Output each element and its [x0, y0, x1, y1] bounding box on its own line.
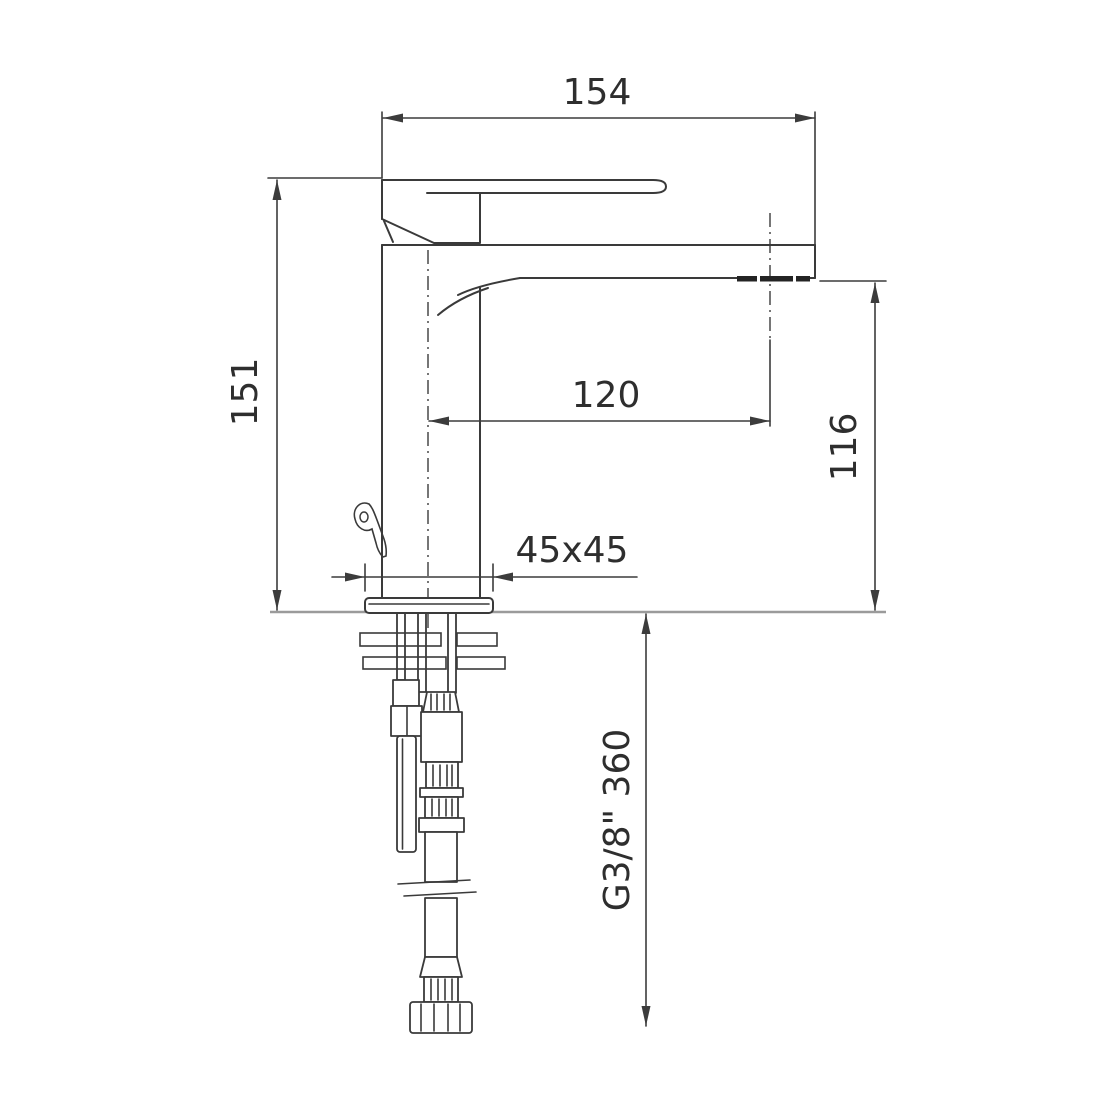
hose-tube-upper: [425, 832, 457, 882]
dimension-154: 154: [382, 72, 815, 245]
arrowhead-154-left: [383, 114, 403, 123]
dimension-g38-360: G3/8" 360: [597, 614, 651, 1026]
aerator-gap-1: [757, 275, 760, 283]
washer-bar-2-right: [457, 657, 505, 669]
hose-connection-nut: [410, 1002, 472, 1033]
aerator-strip: [737, 276, 810, 282]
aerator-gap-2: [793, 275, 796, 283]
supply-tube-right: [448, 613, 456, 693]
arrowhead-120-left: [429, 417, 449, 426]
dim-label-g38: G3/8" 360: [597, 729, 638, 912]
stud-collar: [393, 680, 419, 706]
dimension-116: 116: [820, 281, 886, 610]
faucet-technical-drawing: 154 151 120 116 45x45 G3/8" 360: [0, 0, 1100, 1100]
hose-valve-body: [421, 712, 462, 762]
dimension-151: 151: [225, 178, 382, 610]
hose-band: [419, 818, 464, 832]
hose-crimp-mid: [425, 797, 458, 818]
hook-hole: [360, 512, 368, 522]
arrowhead-154-right: [795, 114, 815, 123]
hose-crimp-top: [423, 692, 459, 712]
base-plate: [365, 598, 493, 613]
dim-label-45x45: 45x45: [516, 530, 629, 571]
handle-lever: [382, 180, 666, 193]
fixing-rod: [397, 736, 416, 852]
dim-label-120: 120: [572, 375, 641, 416]
arrowhead-151-top: [273, 180, 282, 200]
hose-ferrule: [420, 957, 462, 977]
hose-neck: [426, 762, 458, 788]
arrowhead-45x45-right: [493, 573, 513, 582]
arrowhead-151-bottom: [273, 590, 282, 610]
dim-label-154: 154: [563, 72, 632, 113]
spout-fillet-outer: [458, 278, 520, 295]
aerator-icon: [737, 275, 810, 283]
dimension-45x45: 45x45: [332, 530, 637, 591]
arrowhead-45x45-left: [345, 573, 365, 582]
arrowhead-116-top: [871, 283, 880, 303]
arrowhead-g38-top: [642, 614, 651, 634]
arrowhead-120-right: [750, 417, 770, 426]
washer-bar-1-right: [457, 633, 497, 646]
dim-label-116: 116: [824, 413, 865, 482]
hose-tube-lower: [425, 898, 457, 957]
break-line-2: [404, 892, 476, 896]
drawing-canvas: 154 151 120 116 45x45 G3/8" 360: [0, 0, 1100, 1100]
hose-crimp-bottom: [424, 977, 458, 1002]
escutcheon-plate: [365, 598, 493, 613]
arrowhead-g38-bottom: [642, 1006, 651, 1026]
dim-label-151: 151: [225, 358, 266, 427]
under-counter-hardware: [360, 613, 505, 1033]
arrowhead-116-bottom: [871, 590, 880, 610]
handle-base: [382, 193, 480, 243]
hose-collar: [420, 788, 463, 797]
